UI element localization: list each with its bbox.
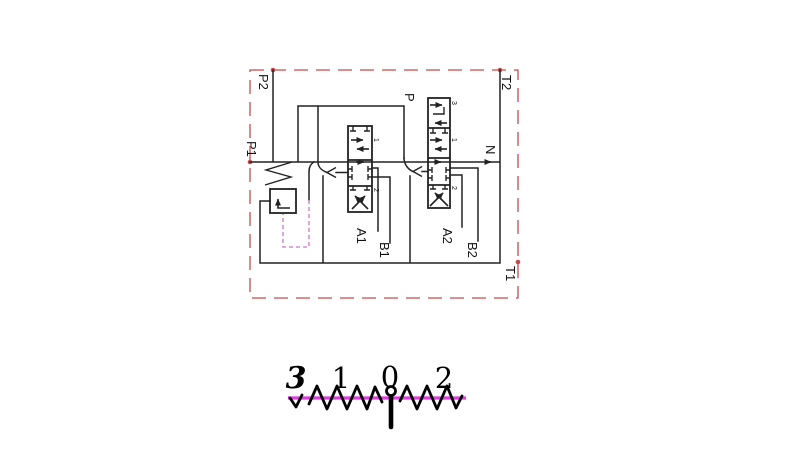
label-b1: B1 bbox=[377, 242, 392, 258]
valve2-pos2-digit: 2 bbox=[450, 186, 457, 190]
relief-spring-icon bbox=[265, 162, 292, 185]
check-valve-2-icon bbox=[413, 167, 422, 177]
valve2-pos3-digit: 3 bbox=[450, 101, 457, 105]
relief-valve-body bbox=[270, 189, 296, 213]
valve1-pos2-cross-arrow-a bbox=[355, 196, 368, 209]
valve1-port-ticks bbox=[348, 126, 372, 190]
circuit-lines bbox=[250, 70, 500, 263]
relief-flow-arrow bbox=[278, 199, 290, 208]
position-number-3: 3 bbox=[286, 361, 307, 396]
label-p: P bbox=[402, 93, 417, 102]
label-b2: B2 bbox=[465, 242, 480, 258]
label-a1: A1 bbox=[354, 228, 369, 244]
label-n: N bbox=[483, 145, 498, 154]
main-wires bbox=[250, 70, 500, 263]
label-p1: P1 bbox=[244, 141, 259, 157]
valve2-pos1-digit: 1 bbox=[450, 138, 457, 142]
valve1-pos2-digit: 2 bbox=[372, 188, 379, 192]
spool-valve-2 bbox=[428, 98, 450, 208]
label-t1: T1 bbox=[503, 266, 518, 281]
lever-position-indicator: 3 1 0 2 bbox=[286, 360, 466, 427]
bypass-hooks bbox=[309, 158, 413, 200]
label-p2: P2 bbox=[256, 74, 271, 90]
valve2-float-link bbox=[433, 107, 444, 114]
spool-valve-1 bbox=[348, 126, 372, 212]
valve1-section-dividers bbox=[348, 160, 372, 186]
port-node-t1 bbox=[516, 260, 521, 265]
valve1-pos1-digit: 1 bbox=[372, 138, 379, 142]
label-a2: A2 bbox=[440, 228, 455, 244]
schematic-page: P2 P1 T2 N T1 P A1 B1 A2 B2 1 2 3 1 2 3 … bbox=[0, 0, 800, 450]
label-t2: T2 bbox=[499, 75, 514, 90]
relief-valve bbox=[265, 162, 309, 247]
valve1-pos2-cross-arrow-b bbox=[352, 196, 365, 209]
check-valve-1-icon bbox=[327, 168, 336, 178]
hydraulic-schematic: P2 P1 T2 N T1 P A1 B1 A2 B2 1 2 3 1 2 3 … bbox=[0, 0, 800, 450]
